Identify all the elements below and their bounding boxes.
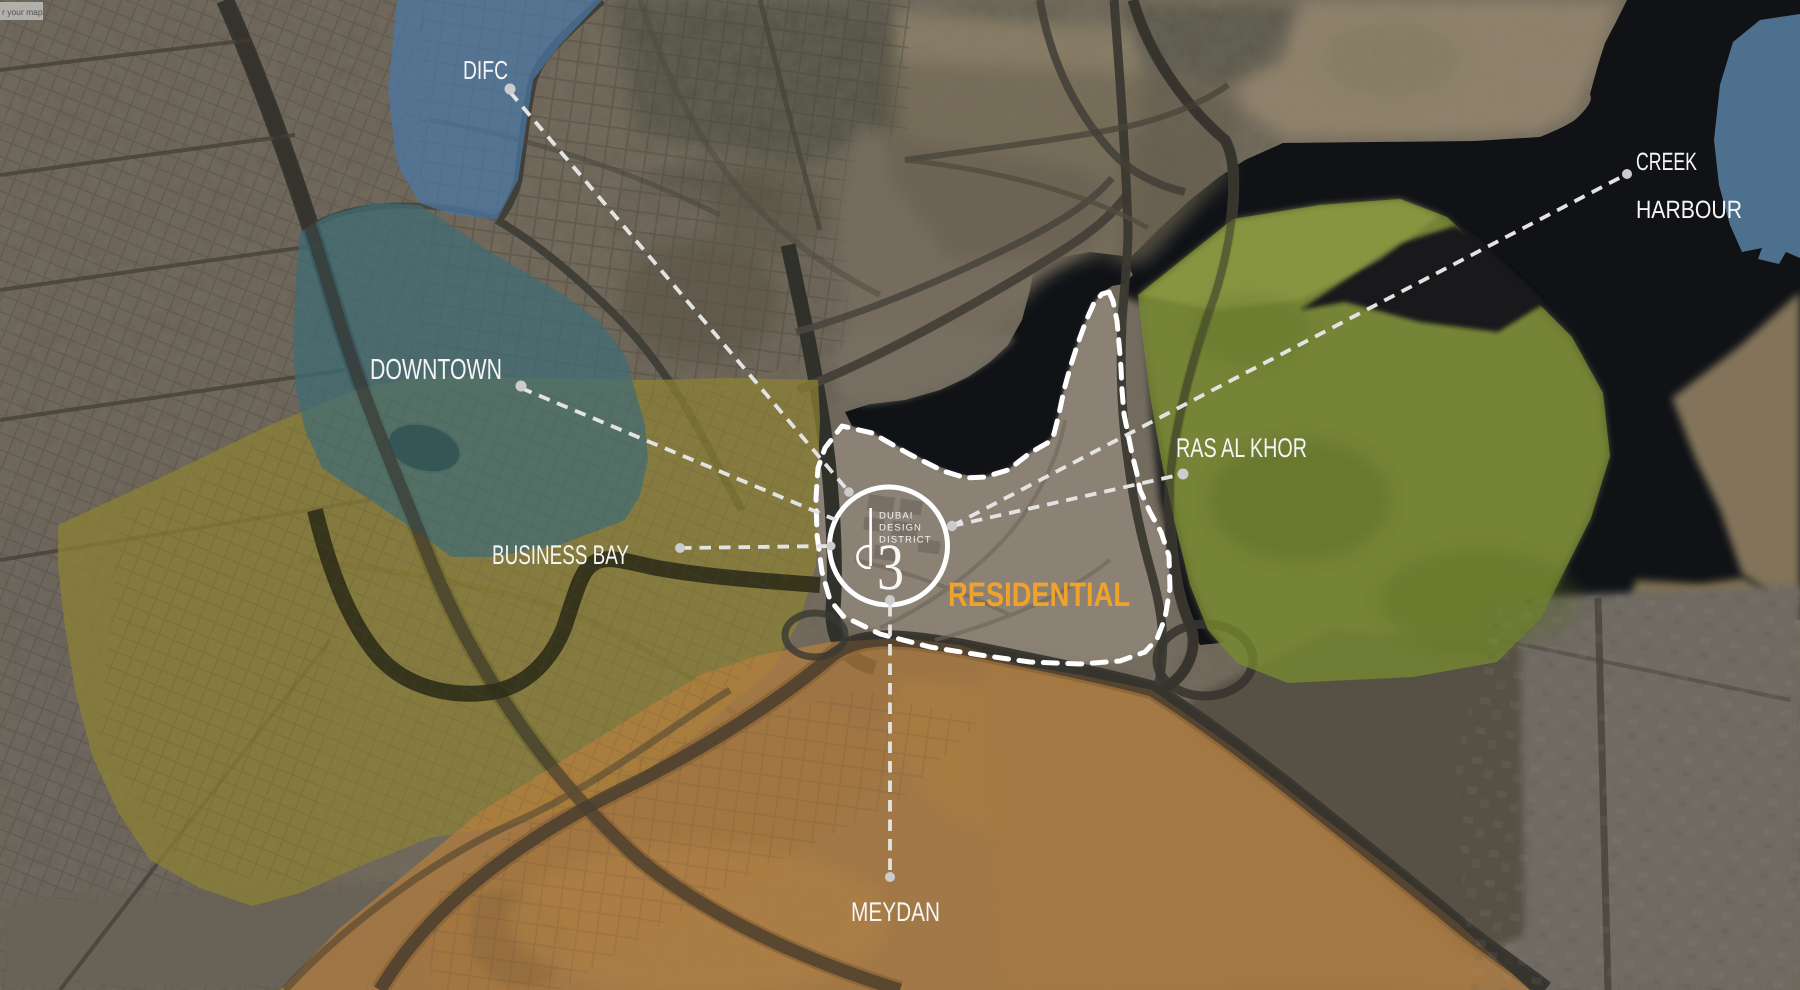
svg-text:RAS AL KHOR: RAS AL KHOR xyxy=(1176,433,1307,463)
svg-text:DUBAI: DUBAI xyxy=(879,511,914,522)
svg-text:CREEK: CREEK xyxy=(1636,148,1697,176)
svg-text:r your map.: r your map. xyxy=(2,7,45,17)
svg-text:HARBOUR: HARBOUR xyxy=(1636,196,1742,224)
svg-text:MEYDAN: MEYDAN xyxy=(851,897,940,927)
svg-text:BUSINESS BAY: BUSINESS BAY xyxy=(492,540,629,570)
svg-text:DIFC: DIFC xyxy=(463,55,508,85)
svg-text:3: 3 xyxy=(877,531,904,604)
svg-text:RESIDENTIAL: RESIDENTIAL xyxy=(948,576,1130,614)
svg-text:DOWNTOWN: DOWNTOWN xyxy=(370,354,502,386)
